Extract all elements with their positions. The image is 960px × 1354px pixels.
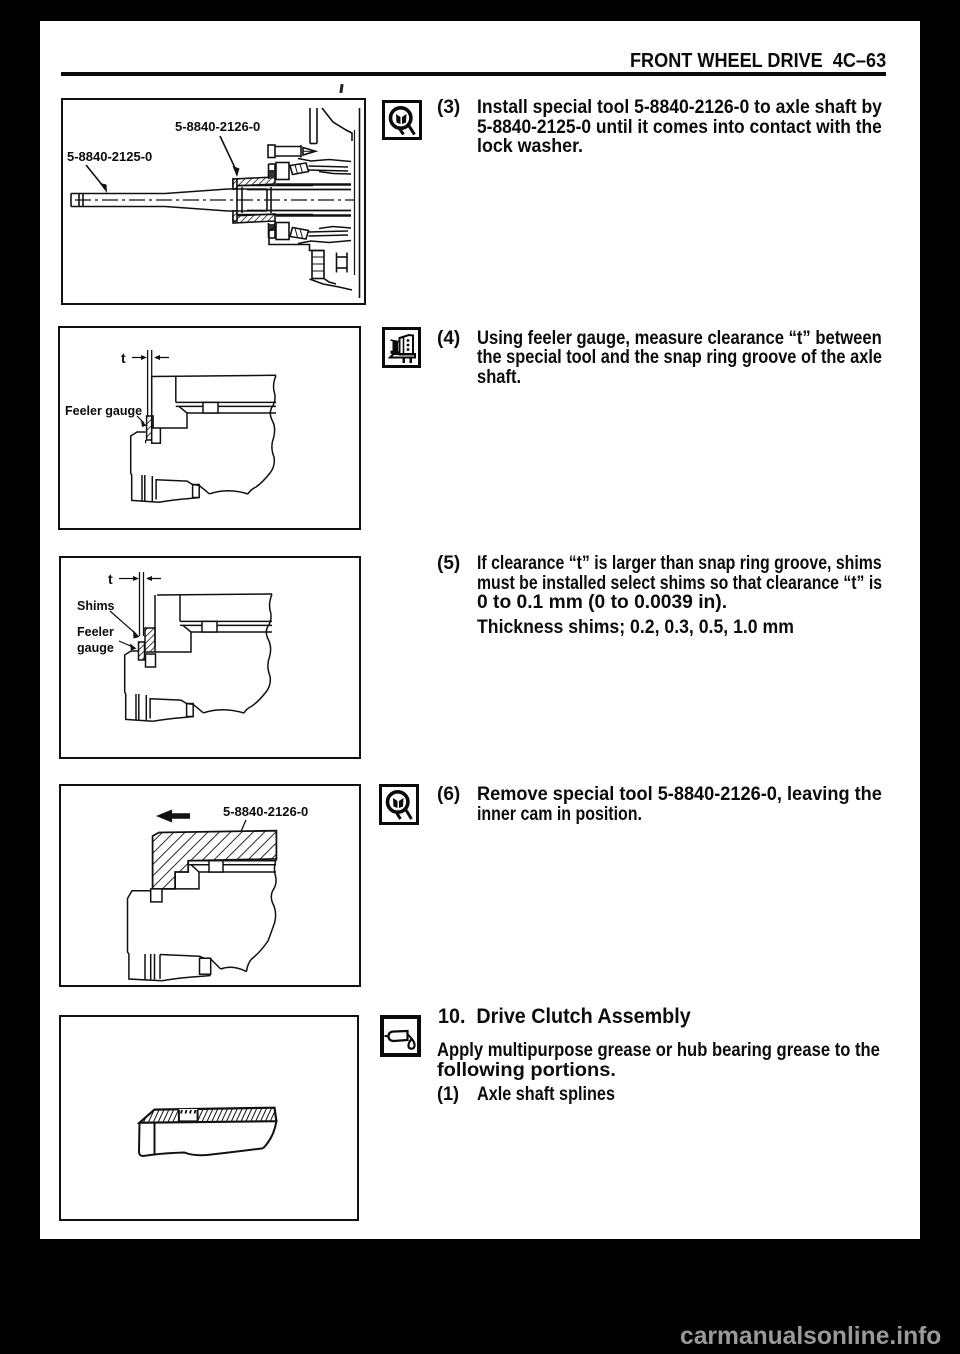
svg-text:5-8840-2126-0: 5-8840-2126-0 — [175, 119, 260, 134]
svg-text:5-8840-2125-0: 5-8840-2125-0 — [67, 149, 152, 164]
svg-text:Feeler gauge: Feeler gauge — [65, 404, 142, 418]
svg-text:Shims: Shims — [77, 599, 115, 613]
svg-text:5-8840-2126-0: 5-8840-2126-0 — [223, 804, 308, 819]
svg-text:t: t — [121, 350, 126, 366]
svg-text:Feeler: Feeler — [77, 625, 114, 639]
svg-text:gauge: gauge — [77, 641, 114, 655]
svg-text:t: t — [108, 571, 113, 587]
